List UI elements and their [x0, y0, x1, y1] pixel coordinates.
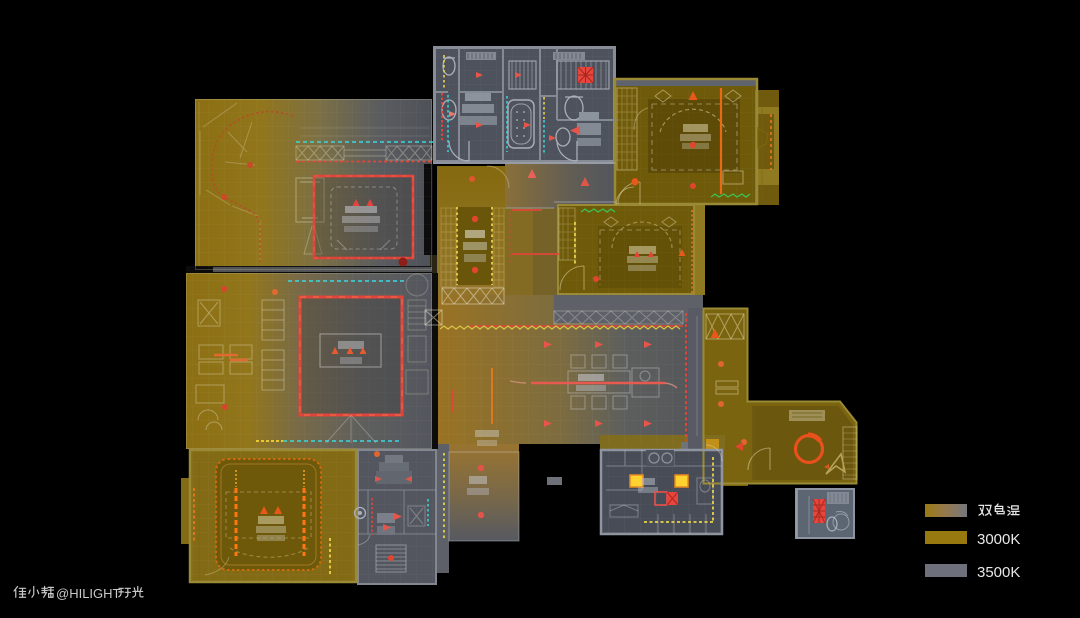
svg-text:3000K: 3000K [977, 531, 1020, 548]
svg-text:@HILIGHT: @HILIGHT [56, 586, 121, 601]
svg-text:3500K: 3500K [977, 564, 1020, 581]
